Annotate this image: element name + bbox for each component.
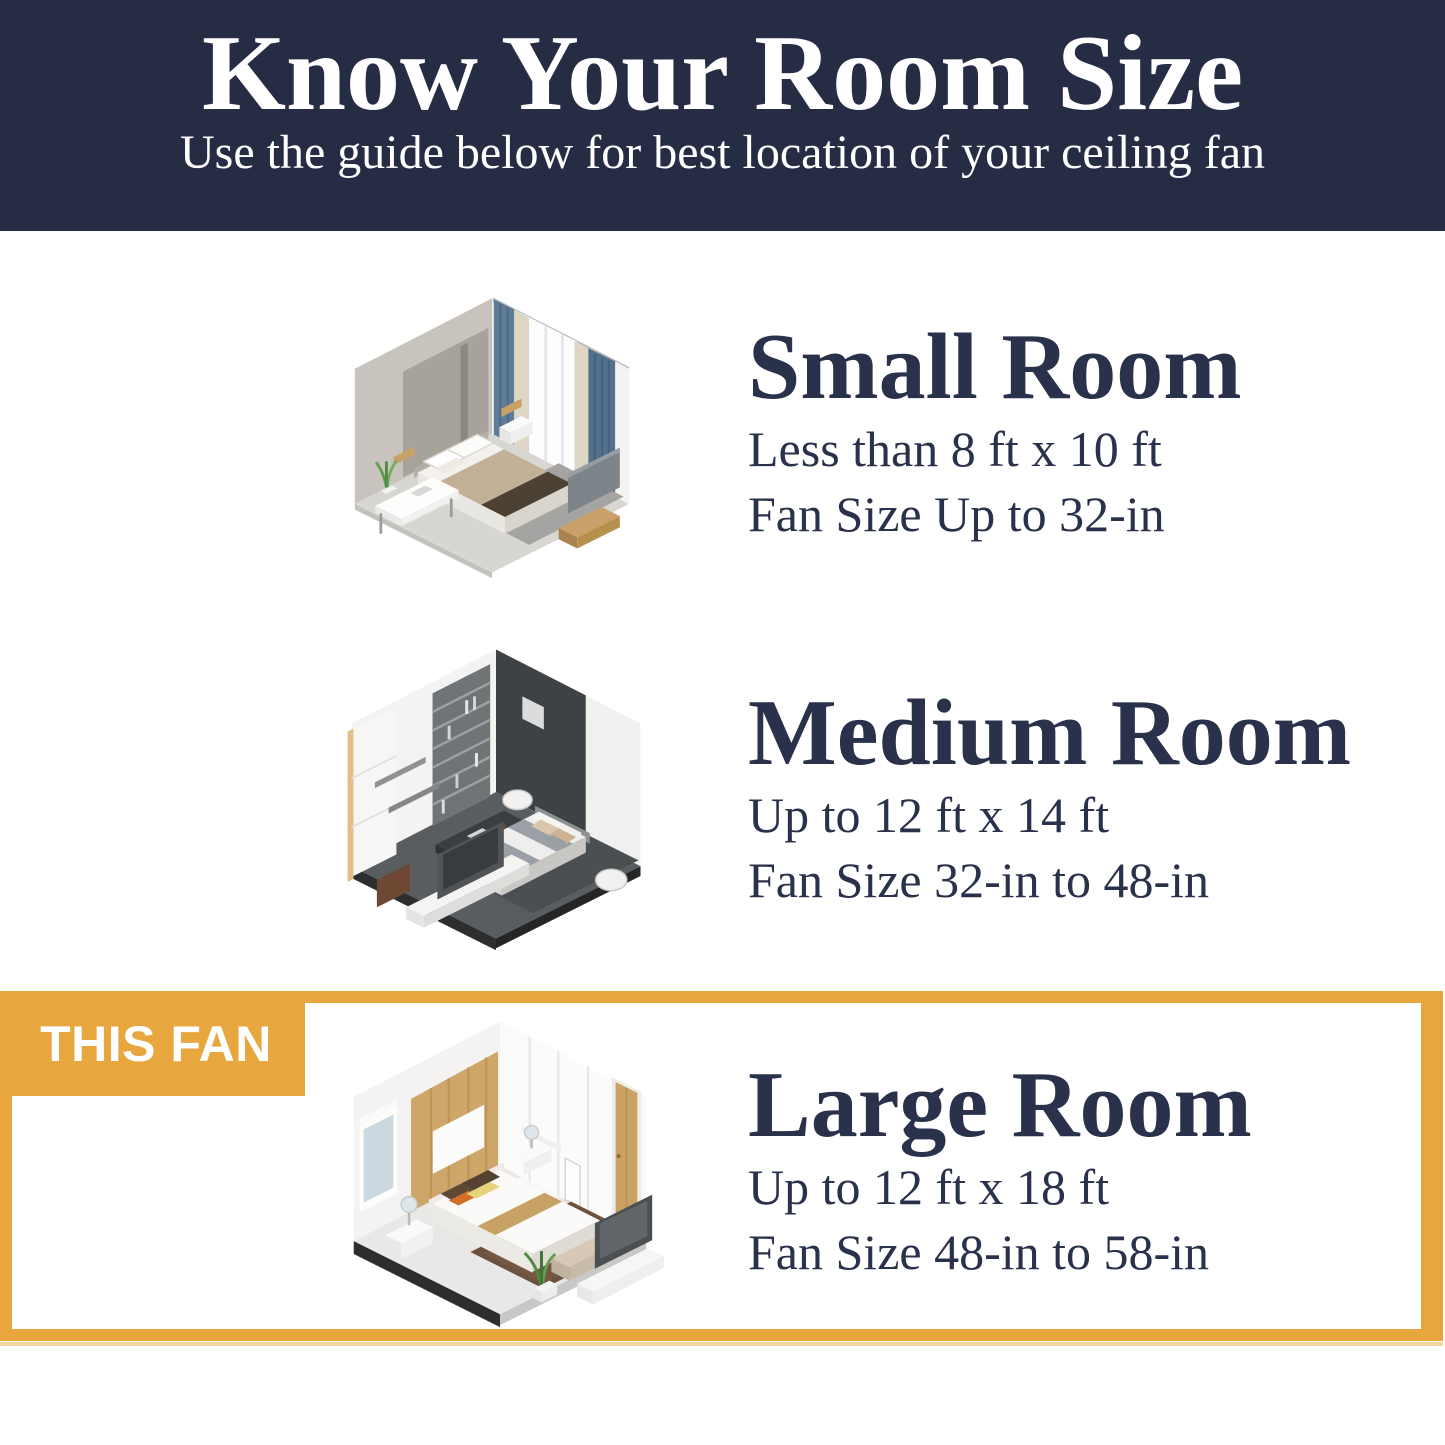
page-title: Know Your Room Size bbox=[0, 0, 1445, 130]
large-room-illustration bbox=[322, 1000, 678, 1336]
window bbox=[360, 1100, 398, 1213]
small-room-illustration bbox=[325, 278, 659, 593]
medium-room-illustration bbox=[320, 628, 672, 960]
section-medium-room: Medium Room Up to 12 ft x 14 ft Fan Size… bbox=[748, 686, 1351, 913]
large-room-title: Large Room bbox=[748, 1058, 1252, 1152]
medium-room-fan-size: Fan Size 32-in to 48-in bbox=[748, 848, 1351, 913]
this-fan-badge-label: THIS FAN bbox=[40, 1015, 272, 1073]
small-room-title: Small Room bbox=[748, 320, 1242, 414]
wardrobe bbox=[348, 707, 397, 882]
medium-room-title: Medium Room bbox=[748, 686, 1351, 780]
section-large-room: Large Room Up to 12 ft x 18 ft Fan Size … bbox=[748, 1058, 1252, 1285]
small-room-dimensions: Less than 8 ft x 10 ft bbox=[748, 417, 1242, 482]
page-header: Know Your Room Size Use the guide below … bbox=[0, 0, 1445, 231]
page-subtitle: Use the guide below for best location of… bbox=[0, 124, 1445, 182]
large-room-dimensions: Up to 12 ft x 18 ft bbox=[748, 1155, 1252, 1220]
medium-room-dimensions: Up to 12 ft x 14 ft bbox=[748, 783, 1351, 848]
section-small-room: Small Room Less than 8 ft x 10 ft Fan Si… bbox=[748, 320, 1242, 547]
frame-shadow-line bbox=[0, 1342, 1443, 1346]
this-fan-badge: THIS FAN bbox=[7, 991, 305, 1096]
large-room-fan-size: Fan Size 48-in to 58-in bbox=[748, 1220, 1252, 1285]
small-room-fan-size: Fan Size Up to 32-in bbox=[748, 482, 1242, 547]
